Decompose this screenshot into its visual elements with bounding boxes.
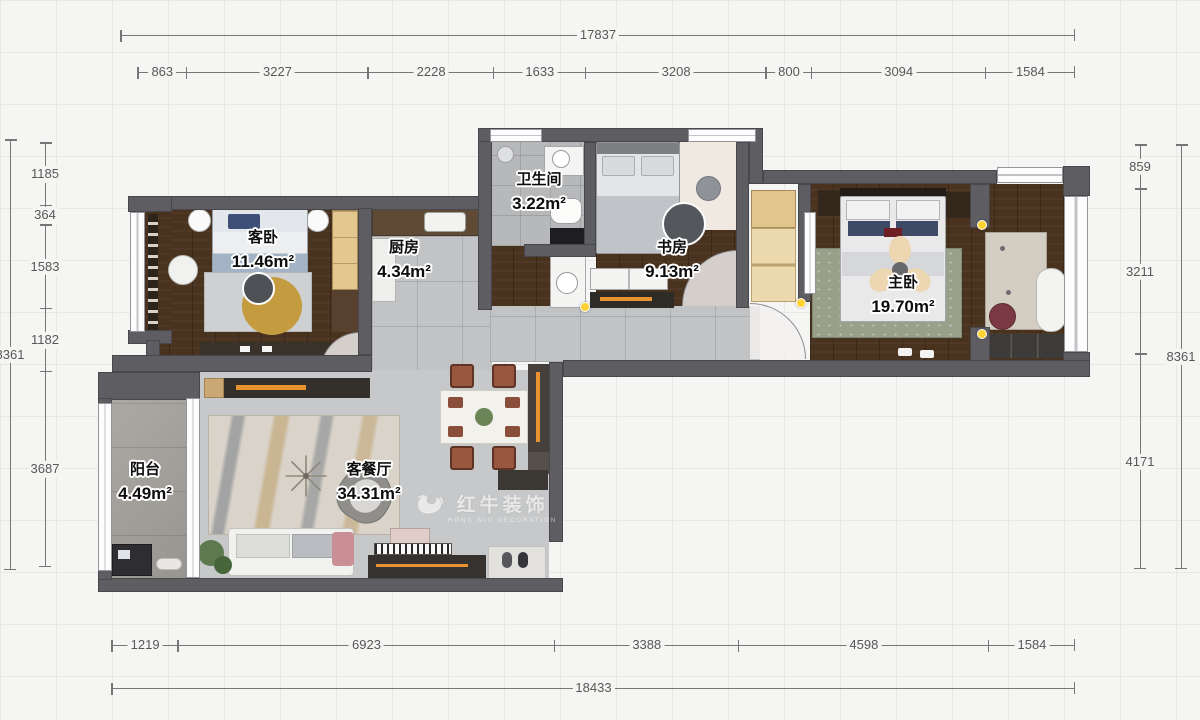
label-bathroom: 卫生间 3.22m² [512, 171, 566, 215]
wall-master-top [763, 170, 997, 184]
dim-label: 18433 [572, 681, 614, 695]
entry-slipper-1 [502, 552, 512, 568]
room-name: 客餐厅 [337, 461, 400, 478]
corridor-closet-top [751, 190, 796, 228]
entry-mat [488, 546, 546, 580]
dim-segment: 6923 [178, 645, 554, 646]
light-marker-2 [796, 298, 806, 308]
room-name: 卫生间 [512, 171, 566, 188]
dining-chair-2 [492, 364, 516, 388]
sofa-pink-throw [332, 532, 354, 566]
dim-segment: 4598 [739, 645, 989, 646]
master-slipper2 [920, 350, 934, 358]
piano-bench [390, 528, 430, 544]
master-door-arc [750, 303, 806, 359]
dim-label: 8361 [0, 347, 26, 363]
dim-segment: 3227 [187, 72, 369, 73]
balcony-tray [156, 558, 182, 570]
dim-label: 3227 [260, 65, 295, 79]
wall-study-right [736, 142, 749, 308]
light-marker-4 [977, 329, 987, 339]
dim-segment: 3388 [555, 645, 739, 646]
placemat-1 [448, 397, 463, 408]
placemat-2 [505, 397, 520, 408]
wall-balcony-top [98, 372, 200, 400]
wall-bath-bottom [524, 244, 596, 257]
dim-segment: 8361 [10, 140, 11, 570]
wall-corner-topright [1063, 166, 1090, 196]
living-ceiling-fan [284, 454, 328, 498]
master-pillow-navy-right [896, 221, 938, 236]
wall-kitchen-bath-divider [478, 128, 492, 310]
dim-label: 1219 [128, 638, 163, 652]
dim-segment: 1584 [989, 645, 1075, 646]
label-guest-bedroom: 客卧 11.46m² [232, 229, 294, 273]
dim-segment: 859 [1140, 145, 1141, 189]
sofa-cushion1 [236, 534, 290, 558]
dim-label: 3687 [29, 461, 62, 477]
piano-accent [376, 564, 468, 567]
master-top-window [997, 167, 1063, 183]
label-living-dining: 客餐厅 34.31m² [337, 461, 400, 505]
guest-dresser-item [240, 346, 250, 352]
room-area: 11.46m² [232, 252, 294, 272]
balcony-window [98, 403, 112, 571]
guest-wardrobe-lower [332, 290, 358, 332]
room-name: 厨房 [377, 239, 431, 256]
room-area: 4.49m² [118, 484, 172, 504]
master-closet-door [804, 212, 816, 294]
guest-stool [242, 272, 275, 305]
dim-label: 1583 [29, 259, 62, 275]
label-kitchen: 厨房 4.34m² [377, 239, 431, 283]
balcony-washer-door [118, 550, 130, 559]
balcony-sliding-door [186, 398, 200, 578]
piano-keys [374, 543, 452, 555]
wall-bath-right [584, 142, 596, 246]
wall-bottom-main [98, 578, 563, 592]
master-pillow-white-left [846, 200, 890, 220]
dim-segment: 17837 [121, 35, 1075, 36]
room-area: 19.70m² [871, 297, 934, 317]
living-plant-small [214, 556, 232, 574]
room-area: 34.31m² [337, 484, 400, 504]
hall-washbasin [556, 272, 578, 294]
dim-label: 364 [32, 207, 58, 223]
corridor-floor [490, 306, 760, 362]
master-chair [989, 303, 1016, 330]
sofa-cushion2 [292, 534, 336, 558]
dim-segment: 800 [766, 72, 811, 73]
room-name: 客卧 [232, 229, 294, 246]
dim-segment: 3211 [1140, 189, 1141, 354]
room-name: 书房 [645, 239, 699, 256]
label-study: 书房 9.13m² [645, 239, 699, 283]
guest-round-chair [168, 255, 198, 285]
study-pouf [696, 176, 721, 201]
dim-label: 3208 [659, 65, 694, 79]
guest-wardrobe [332, 210, 358, 290]
dim-label: 2228 [414, 65, 449, 79]
dim-segment: 8361 [1181, 145, 1182, 569]
dim-label: 1182 [29, 332, 61, 348]
dim-label: 6923 [349, 638, 384, 652]
watermark-tagline: HONG NIU DECORATION [448, 518, 557, 524]
dim-label: 17837 [577, 28, 619, 42]
dim-segment: 1584 [986, 72, 1075, 73]
bath-mat [550, 228, 584, 244]
dim-segment: 2228 [368, 72, 493, 73]
watermark: 红牛装饰 HONG NIU DECORATION [416, 490, 557, 524]
room-name: 主卧 [871, 274, 934, 291]
floor-plan-page: { "rooms": { "guest_bedroom": {"name": "… [0, 0, 1200, 720]
dim-segment: 4171 [1140, 354, 1141, 569]
dim-segment: 1185 [45, 143, 46, 206]
room-area: 3.22m² [512, 194, 566, 214]
tv-stand-wood-end [204, 378, 224, 398]
dim-label: 1584 [1013, 65, 1048, 79]
wall-guest-bottom [112, 355, 372, 372]
dim-label: 1633 [522, 65, 557, 79]
dim-segment: 1633 [494, 72, 586, 73]
master-desk-knob1 [1000, 246, 1005, 251]
wall-top-guest-kitchen [128, 196, 492, 210]
room-area: 9.13m² [645, 262, 699, 282]
placemat-4 [505, 426, 520, 437]
dim-label: 1185 [29, 166, 61, 182]
dim-segment: 3208 [586, 72, 767, 73]
dim-label: 859 [1127, 159, 1153, 175]
dim-label: 8361 [1165, 349, 1198, 365]
study-pillow-right [641, 156, 674, 176]
guest-curtain [148, 214, 158, 332]
corridor-closet-bottom [751, 228, 796, 302]
dim-segment: 3094 [812, 72, 986, 73]
watermark-brand: 红牛装饰 [457, 490, 549, 517]
dim-label: 863 [148, 65, 176, 79]
master-desk-knob2 [1006, 290, 1011, 295]
dim-label: 1584 [1014, 638, 1049, 652]
master-slipper1 [898, 348, 912, 356]
dim-label: 3094 [881, 65, 916, 79]
bathroom-window [490, 129, 542, 142]
kitchen-sink [424, 212, 466, 232]
bath-showerhead [497, 146, 514, 163]
room-name: 阳台 [118, 461, 172, 478]
balcony-washer [112, 544, 152, 576]
dim-segment: 18433 [112, 688, 1075, 689]
bull-logo-icon [416, 494, 444, 520]
dining-chair-3 [450, 446, 474, 470]
study-pillow-left [602, 156, 635, 176]
dim-label: 800 [775, 65, 803, 79]
dim-segment: 3687 [45, 372, 46, 567]
guest-nightstand-left [188, 209, 211, 232]
placemat-3 [448, 426, 463, 437]
wall-south-corridor-master [563, 360, 1090, 377]
guest-bay-window [130, 212, 145, 332]
wall-guest-kitchen-divider [358, 208, 372, 355]
entry-slipper-2 [518, 552, 528, 568]
master-nightstand-left [818, 190, 840, 216]
light-marker-3 [977, 220, 987, 230]
master-nightstand-right [944, 192, 972, 218]
dim-segment: 364 [45, 206, 46, 225]
room-area: 4.34m² [377, 262, 431, 282]
bookcase-accent [536, 372, 540, 442]
dim-label: 4171 [1124, 454, 1157, 470]
dim-segment: 1182 [45, 309, 46, 372]
dim-segment: 863 [138, 72, 187, 73]
living-console-shelf [498, 470, 548, 490]
watermark-text: 红牛装饰 HONG NIU DECORATION [448, 490, 557, 524]
guest-pillow [228, 214, 260, 229]
study-window [688, 129, 756, 142]
study-media-accent [600, 297, 652, 301]
master-chaise [1036, 268, 1066, 332]
dim-label: 3388 [629, 638, 664, 652]
label-balcony: 阳台 4.49m² [118, 461, 172, 505]
master-wardrobe [985, 334, 1065, 358]
bath-basin [552, 150, 570, 168]
label-master-bedroom: 主卧 19.70m² [871, 274, 934, 318]
guest-nightstand-right [306, 209, 329, 232]
dining-centerpiece-plant [475, 408, 493, 426]
tv-console-accent [236, 385, 306, 390]
guest-dresser-item2 [262, 346, 272, 352]
dim-label: 3211 [1124, 264, 1156, 280]
light-marker-1 [580, 302, 590, 312]
master-pillow-white-right [896, 200, 940, 220]
dim-label: 4598 [846, 638, 881, 652]
dim-segment: 1219 [112, 645, 178, 646]
wall-bay-top [128, 196, 172, 212]
master-right-window [1064, 196, 1088, 352]
dim-segment: 1583 [45, 225, 46, 309]
dining-chair-1 [450, 364, 474, 388]
dining-chair-4 [492, 446, 516, 470]
